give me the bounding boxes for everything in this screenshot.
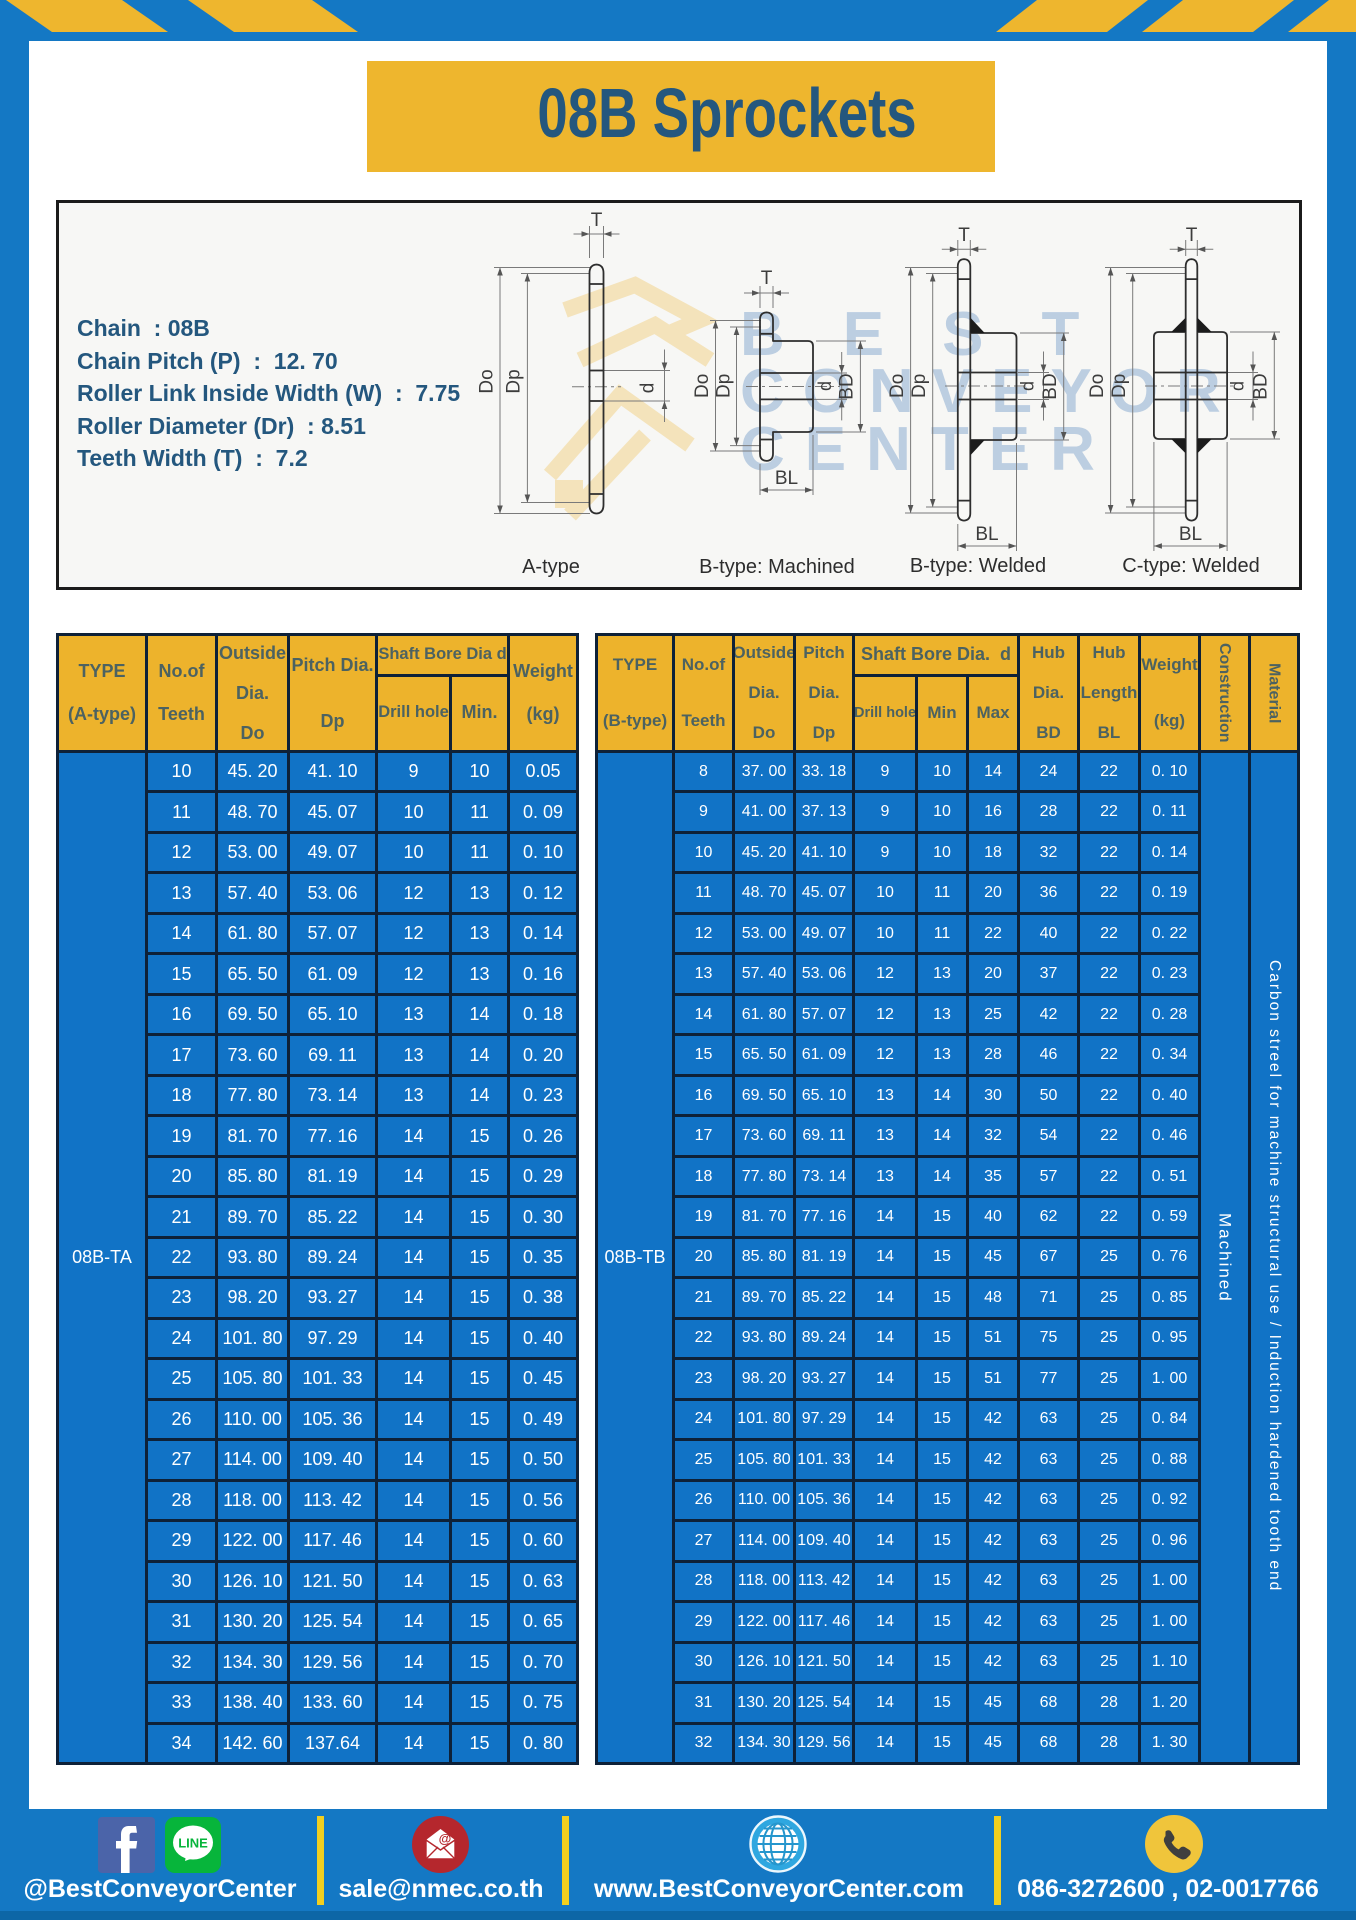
svg-text:Do: Do [477,369,498,393]
svg-text:d: d [1228,381,1248,391]
svg-text:Do: Do [1087,374,1108,398]
svg-text:T: T [1186,225,1198,246]
svg-text:Dp: Dp [504,369,525,393]
svg-text:d: d [815,381,835,391]
svg-text:BD: BD [1040,373,1061,399]
svg-text:BD: BD [837,373,858,399]
svg-text:Dp: Dp [909,374,930,398]
svg-text:BD: BD [1251,373,1272,399]
svg-text:LINE: LINE [178,1836,208,1851]
svg-text:T: T [591,210,603,231]
svg-text:Dp: Dp [714,374,735,398]
svg-text:BL: BL [975,524,998,545]
svg-text:Do: Do [887,374,908,398]
svg-text:Dp: Dp [1109,374,1130,398]
svg-text:A-type: A-type [522,556,580,578]
svg-text:d: d [1018,381,1038,391]
svg-text:B-type: Welded: B-type: Welded [910,555,1046,577]
svg-text:T: T [958,225,970,246]
svg-text:@: @ [439,1831,452,1846]
svg-text:d: d [638,383,659,394]
svg-text:C-type: Welded: C-type: Welded [1122,555,1259,577]
svg-text:Do: Do [692,374,713,398]
svg-text:B-type: Machined: B-type: Machined [699,556,855,578]
svg-text:T: T [761,268,773,289]
svg-text:BL: BL [1179,524,1202,545]
svg-text:BL: BL [775,468,798,489]
